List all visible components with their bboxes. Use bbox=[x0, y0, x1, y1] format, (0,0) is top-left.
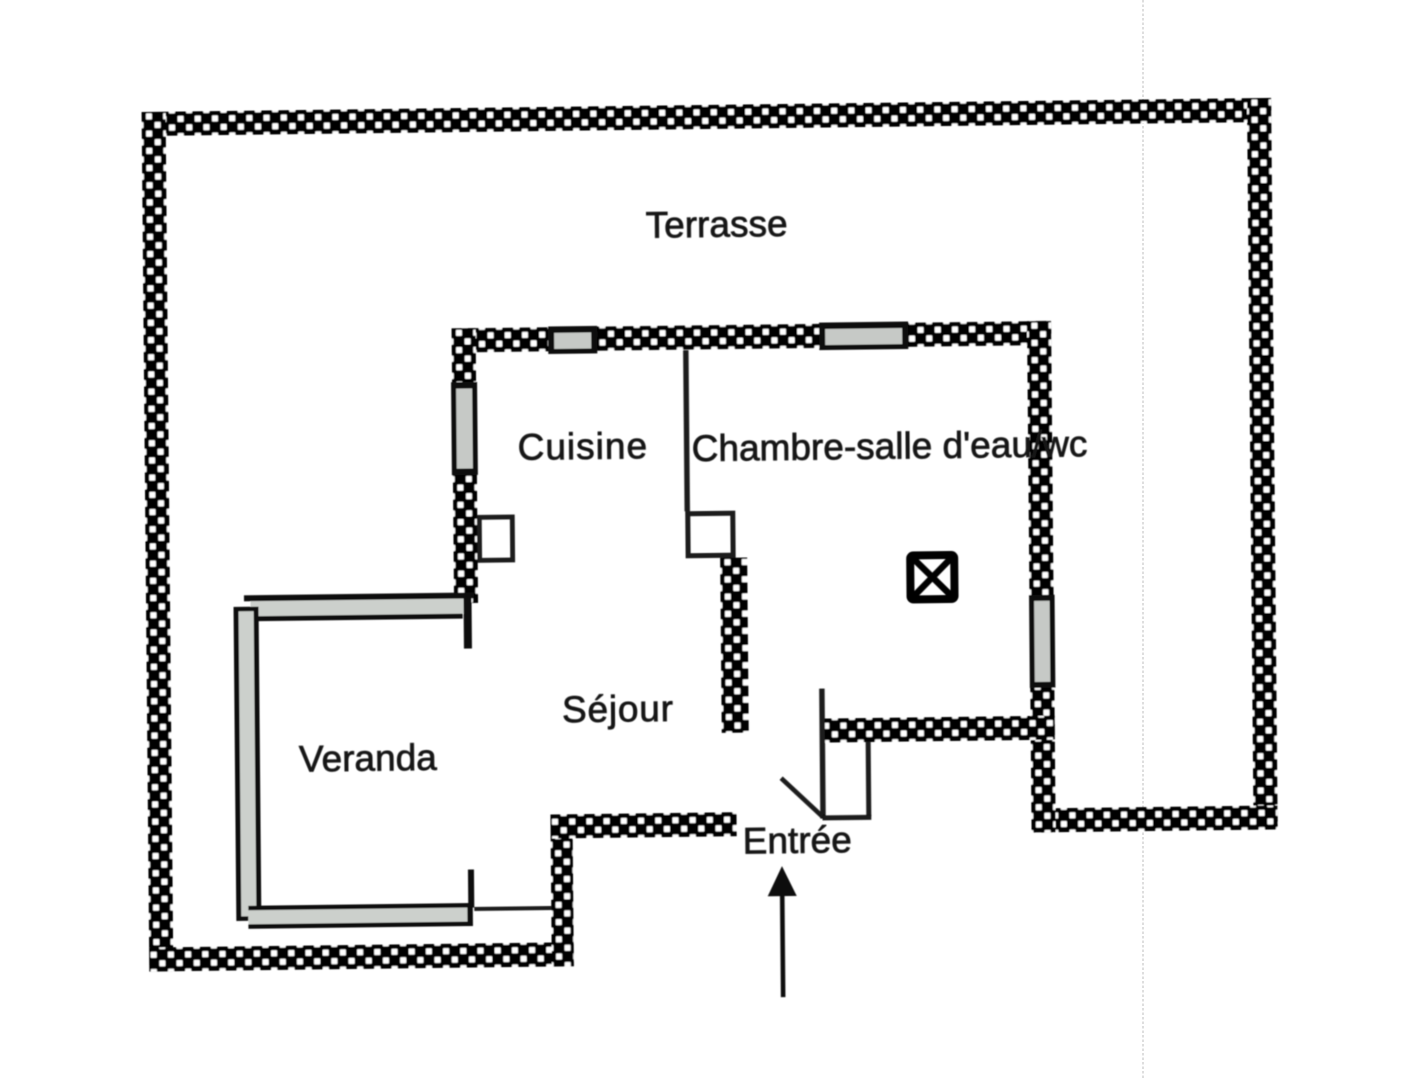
svg-text:Séjour: Séjour bbox=[562, 688, 674, 730]
svg-text:Cuisine: Cuisine bbox=[517, 425, 648, 468]
svg-text:Veranda: Veranda bbox=[299, 737, 438, 780]
svg-text:Entrée: Entrée bbox=[743, 819, 852, 861]
svg-text:Terrasse: Terrasse bbox=[645, 203, 787, 246]
svg-text:Chambre-salle d'eau/wc: Chambre-salle d'eau/wc bbox=[691, 423, 1087, 469]
